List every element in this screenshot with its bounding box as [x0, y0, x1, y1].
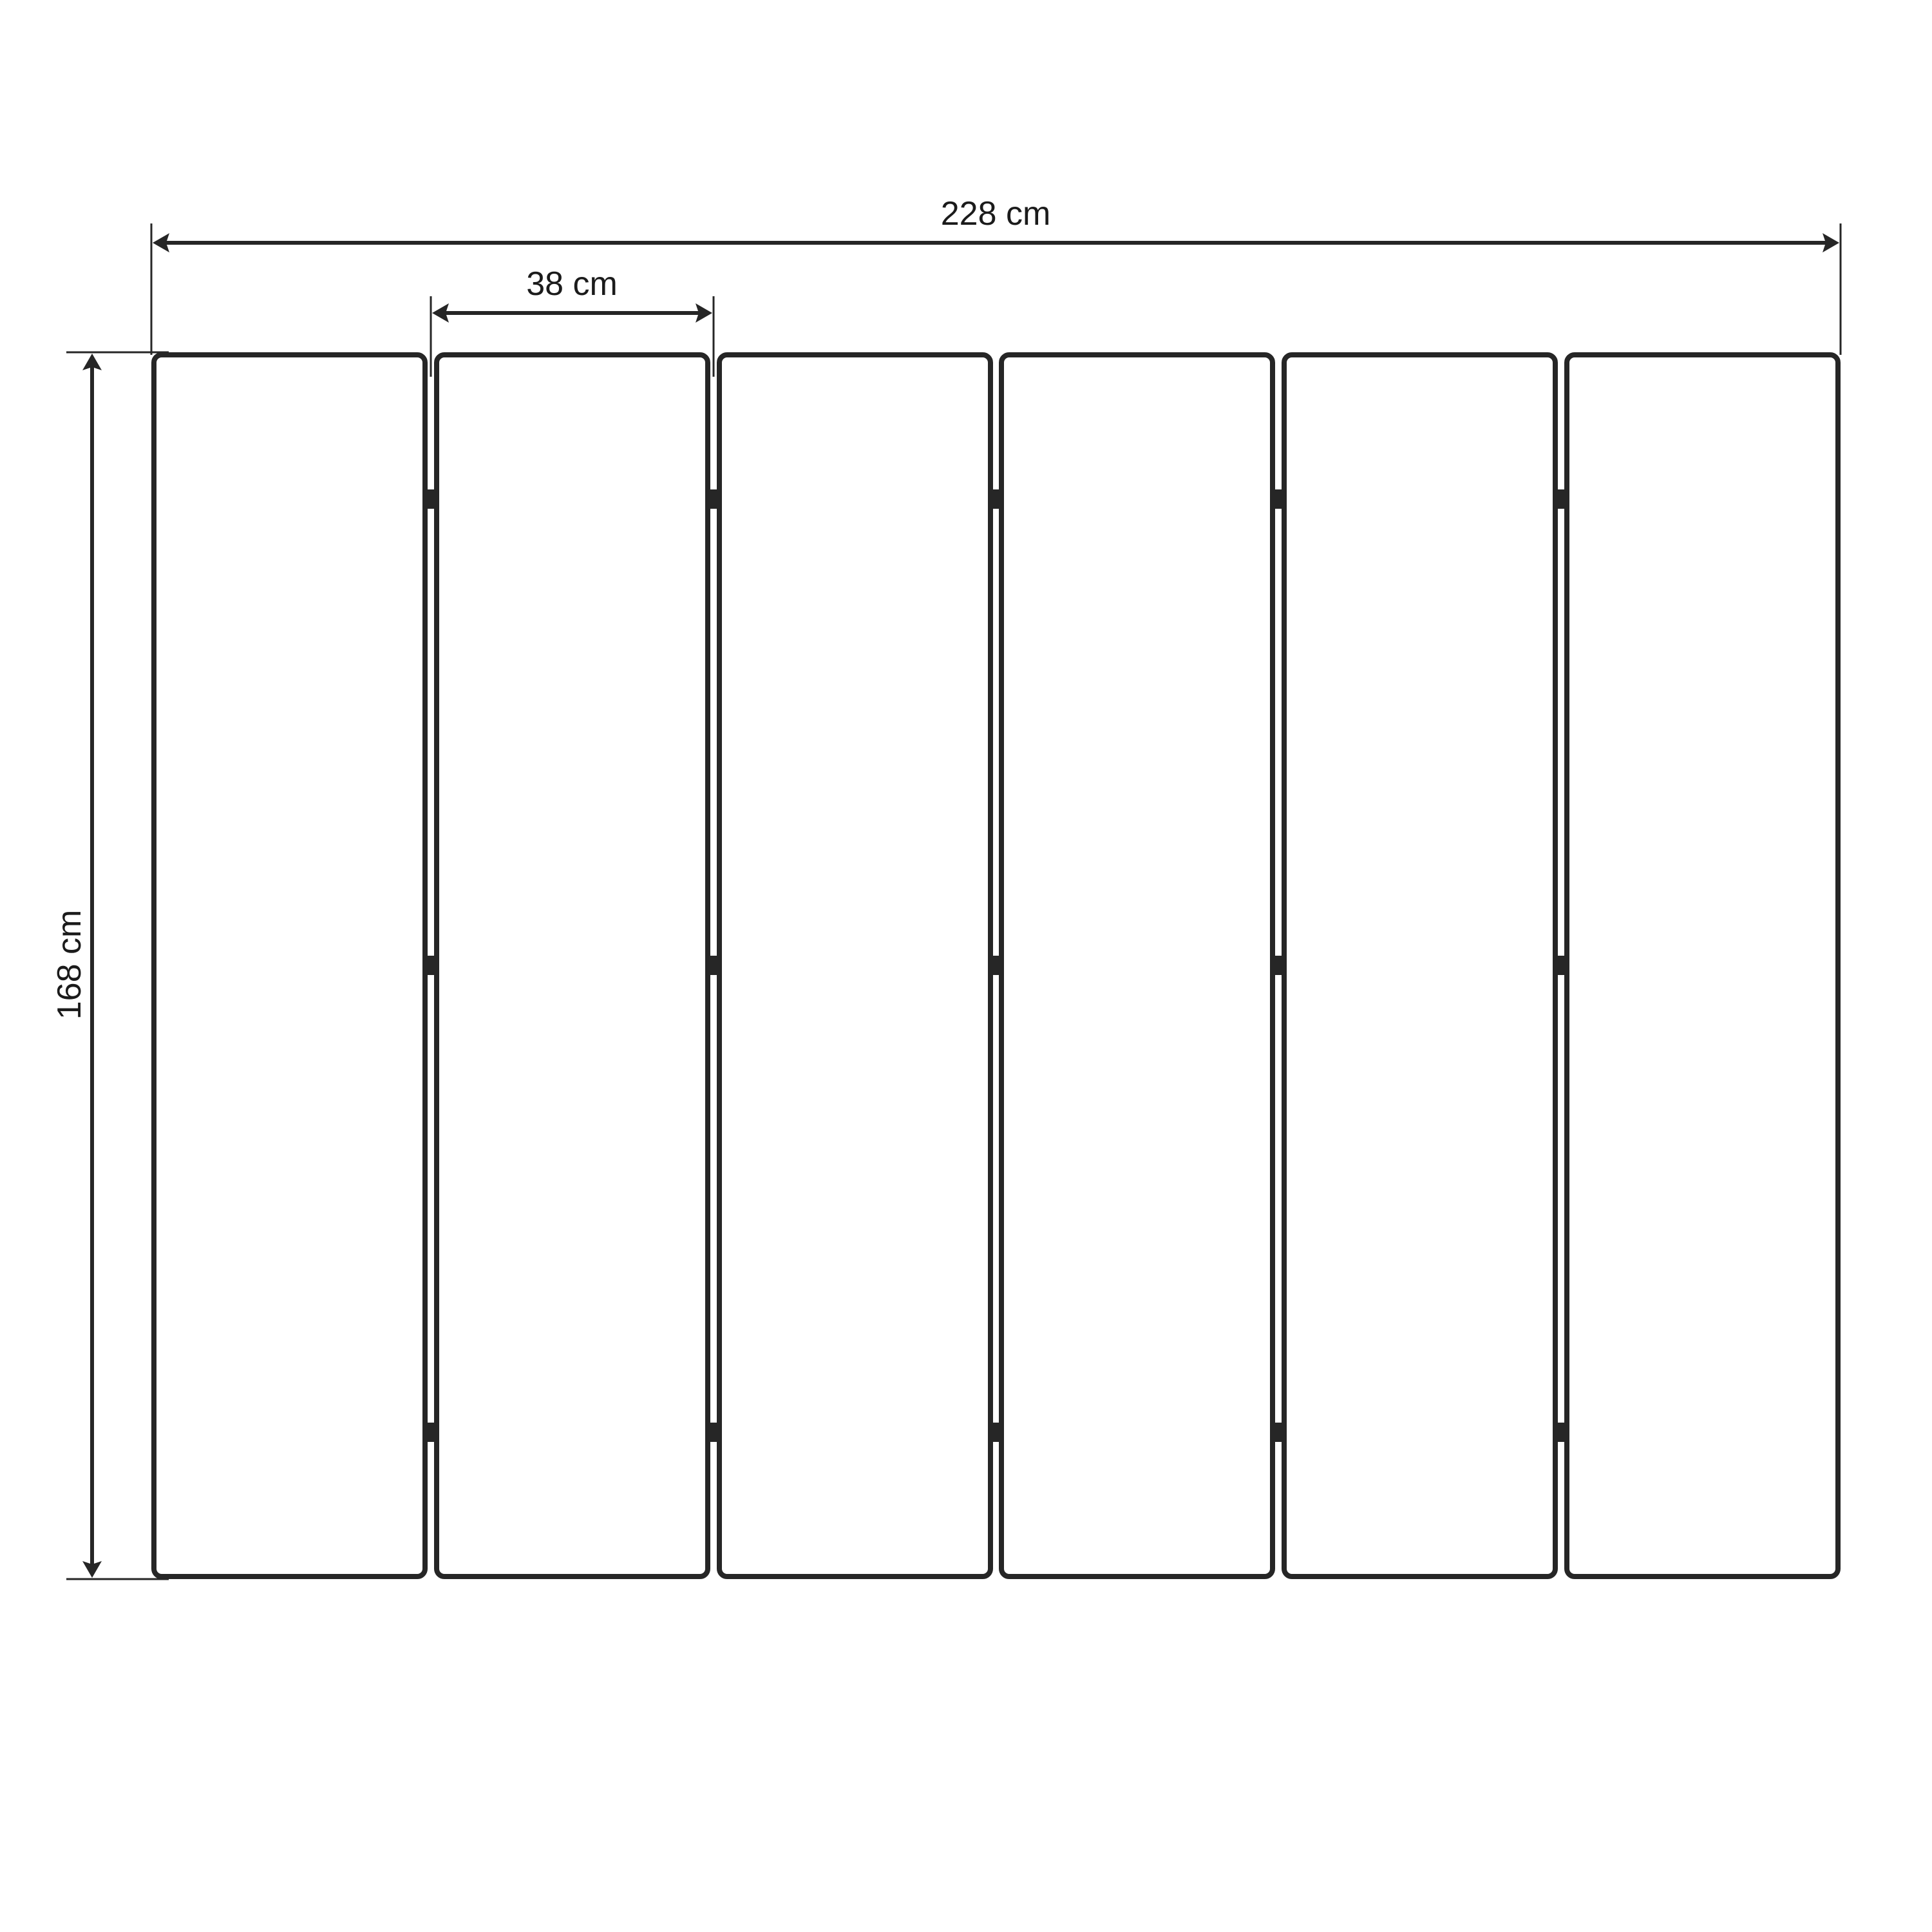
hinge-mark — [1273, 1423, 1283, 1442]
hinge-mark — [991, 1423, 1001, 1442]
hinge-mark — [1273, 956, 1283, 975]
panel — [1567, 355, 1838, 1577]
panel — [1001, 355, 1273, 1577]
hinge-mark — [1556, 489, 1566, 509]
hinge-mark — [1273, 489, 1283, 509]
total-width-label: 228 cm — [941, 195, 1051, 232]
hinge-mark — [426, 489, 436, 509]
dim-height: 168 cm — [51, 352, 169, 1579]
hinges — [426, 489, 1566, 1442]
hinge-mark — [991, 956, 1001, 975]
dim-panel-width: 38 cm — [431, 265, 714, 377]
hinge-mark — [991, 489, 1001, 509]
hinge-mark — [708, 956, 719, 975]
panel-width-label: 38 cm — [526, 265, 618, 303]
hinge-mark — [708, 489, 719, 509]
hinge-mark — [1556, 1423, 1566, 1442]
dim-total-width: 228 cm — [151, 195, 1841, 355]
hinge-mark — [708, 1423, 719, 1442]
panel — [154, 355, 425, 1577]
height-label: 168 cm — [51, 910, 88, 1020]
hinge-mark — [426, 1423, 436, 1442]
hinge-mark — [1556, 956, 1566, 975]
panel — [719, 355, 990, 1577]
dimension-diagram: 228 cm 38 cm 168 cm — [0, 0, 1932, 1932]
panel — [1284, 355, 1555, 1577]
panel — [437, 355, 708, 1577]
hinge-mark — [426, 956, 436, 975]
panel-drawing-svg: 228 cm 38 cm 168 cm — [0, 0, 1932, 1932]
